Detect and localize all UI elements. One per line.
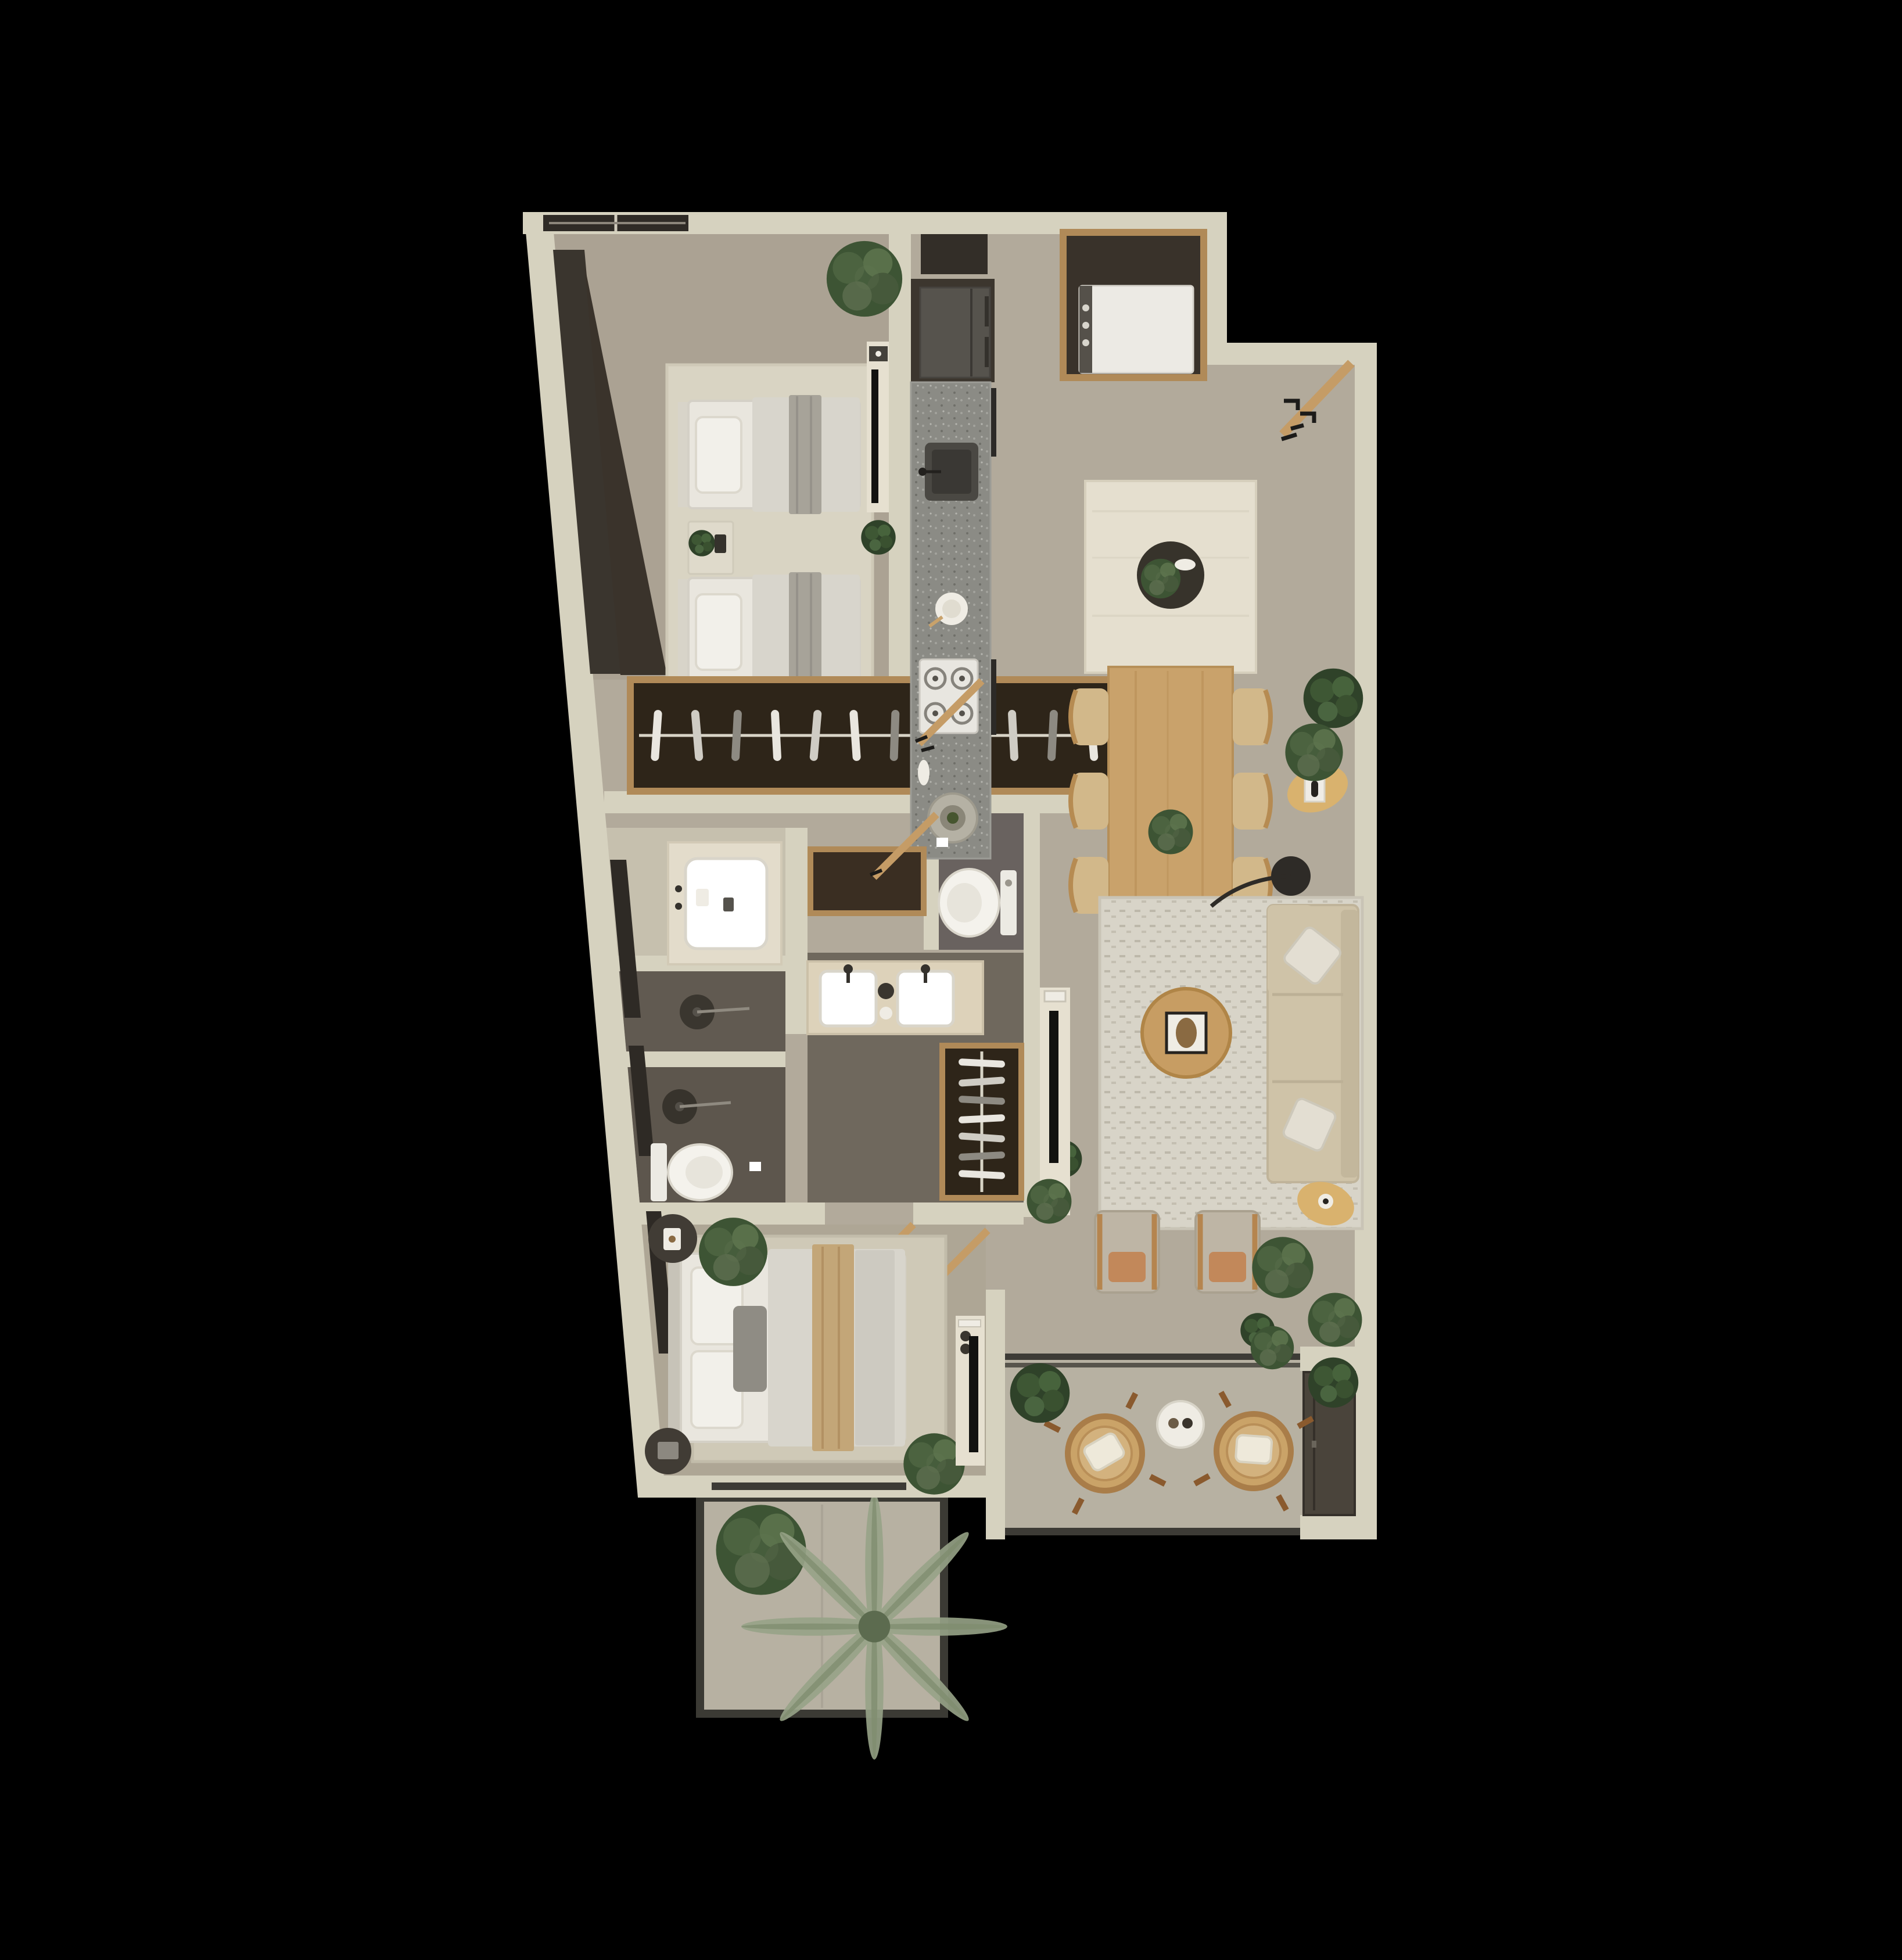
kitchen-sink	[918, 443, 978, 501]
fridge	[920, 288, 990, 378]
kitchen-counter	[911, 382, 996, 859]
walkin-rack	[942, 1046, 1021, 1198]
patio-sliding-door	[712, 1482, 906, 1490]
twin-bed-1	[678, 395, 860, 514]
living-plant-se-1	[1252, 1237, 1313, 1298]
floor-plan-figure: Apartment floor plan – rendered top view	[0, 0, 1902, 1960]
twin-bed-2	[678, 572, 860, 691]
twin-tv	[871, 369, 878, 503]
master-plant-nw	[699, 1218, 767, 1286]
wall-balcony-south-piece	[1300, 1515, 1377, 1539]
wall-notch-horizontal	[1205, 343, 1377, 365]
living-plant-se-2	[1308, 1293, 1362, 1347]
bath-bench	[810, 849, 924, 913]
cabinet-handle-1	[991, 388, 996, 457]
balcony-plant-east	[1308, 1358, 1358, 1408]
balcony-plant-north	[1251, 1326, 1294, 1369]
dining-table-plant	[1149, 810, 1193, 855]
wall-shower-divider	[626, 1051, 785, 1067]
master-nightstand-north	[648, 1214, 697, 1263]
twin-corner-plant	[827, 241, 902, 317]
accent-pillow	[733, 1306, 767, 1392]
master-tv	[969, 1336, 978, 1452]
living-tv	[1049, 1011, 1058, 1163]
wall-living-divider	[1024, 813, 1040, 1217]
living-plant-ne-1	[1304, 669, 1363, 728]
balcony-plant-west	[1010, 1363, 1070, 1423]
media-magazine	[1045, 991, 1065, 1001]
laundry-closet	[1063, 232, 1204, 378]
living-plant-ne-2	[1285, 723, 1343, 781]
patio-palm-plant	[741, 1494, 1007, 1760]
wardrobe	[630, 680, 1130, 791]
bed-runner	[812, 1244, 854, 1451]
dining-chairs-left	[1071, 688, 1108, 914]
island-tray	[1137, 541, 1204, 609]
kitchen	[911, 234, 996, 859]
master-bedroom	[645, 1214, 985, 1495]
cabinet-handle-2	[991, 659, 996, 735]
double-vanity	[808, 961, 983, 1034]
armchair-1	[1095, 1211, 1159, 1293]
coffee-table	[1142, 989, 1230, 1077]
master-nightstand-south	[645, 1428, 691, 1474]
wall-master-north-right	[913, 1202, 1024, 1225]
floor-plan-image	[0, 0, 1902, 1960]
balcony-south-railing	[1005, 1528, 1300, 1535]
master-plant-se	[903, 1433, 964, 1494]
twin-console-plant	[861, 520, 895, 554]
balcony-table	[1157, 1401, 1204, 1448]
bath1-vanity	[668, 842, 781, 964]
master-bed	[668, 1244, 905, 1451]
media-plant	[1027, 1179, 1072, 1224]
toilet-1	[939, 869, 1017, 936]
kitchen-island	[1085, 481, 1256, 673]
armchair-2	[1196, 1211, 1259, 1293]
utensil	[918, 760, 930, 785]
washer	[1079, 286, 1193, 373]
toilet-paper	[749, 1162, 761, 1171]
wall-notch-vertical	[1205, 212, 1227, 365]
wall-balcony-west	[986, 1290, 1005, 1539]
twin-nightstand	[688, 522, 733, 574]
sofa	[1268, 905, 1358, 1182]
toilet-paper-2	[936, 838, 948, 847]
kitchen-upper-niche	[921, 234, 988, 274]
master-tv-console	[956, 1316, 985, 1466]
wall-bath-divider	[785, 828, 808, 1034]
